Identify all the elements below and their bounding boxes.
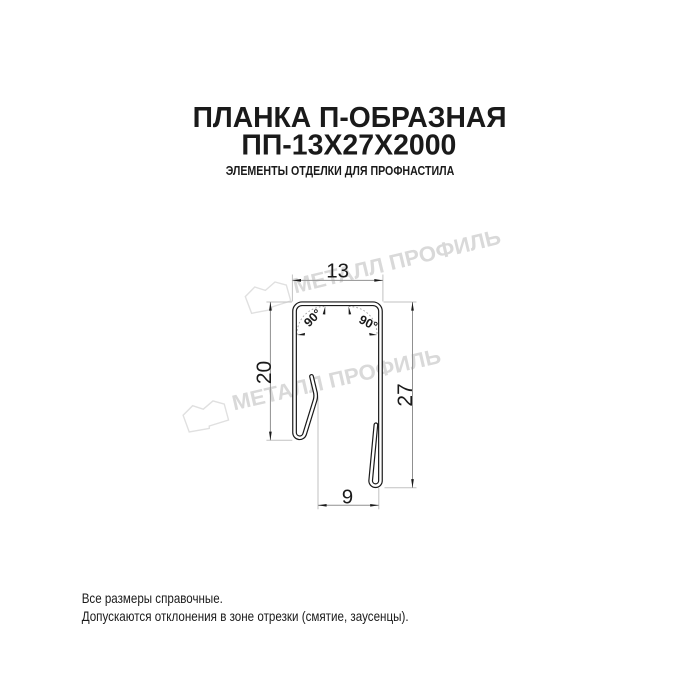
svg-text:Допускаются отклонения в зоне: Допускаются отклонения в зоне отрезки (с… bbox=[82, 608, 409, 624]
svg-text:20: 20 bbox=[253, 361, 276, 384]
svg-text:ЭЛЕМЕНТЫ ОТДЕЛКИ ДЛЯ ПРОФНАСТИ: ЭЛЕМЕНТЫ ОТДЕЛКИ ДЛЯ ПРОФНАСТИЛА bbox=[226, 164, 455, 178]
svg-text:Все размеры справочные.: Все размеры справочные. bbox=[82, 590, 223, 606]
svg-text:9: 9 bbox=[342, 485, 353, 508]
svg-text:27: 27 bbox=[394, 383, 417, 406]
svg-text:ПП-13Х27Х2000: ПП-13Х27Х2000 bbox=[241, 129, 456, 161]
svg-text:13: 13 bbox=[326, 260, 349, 283]
